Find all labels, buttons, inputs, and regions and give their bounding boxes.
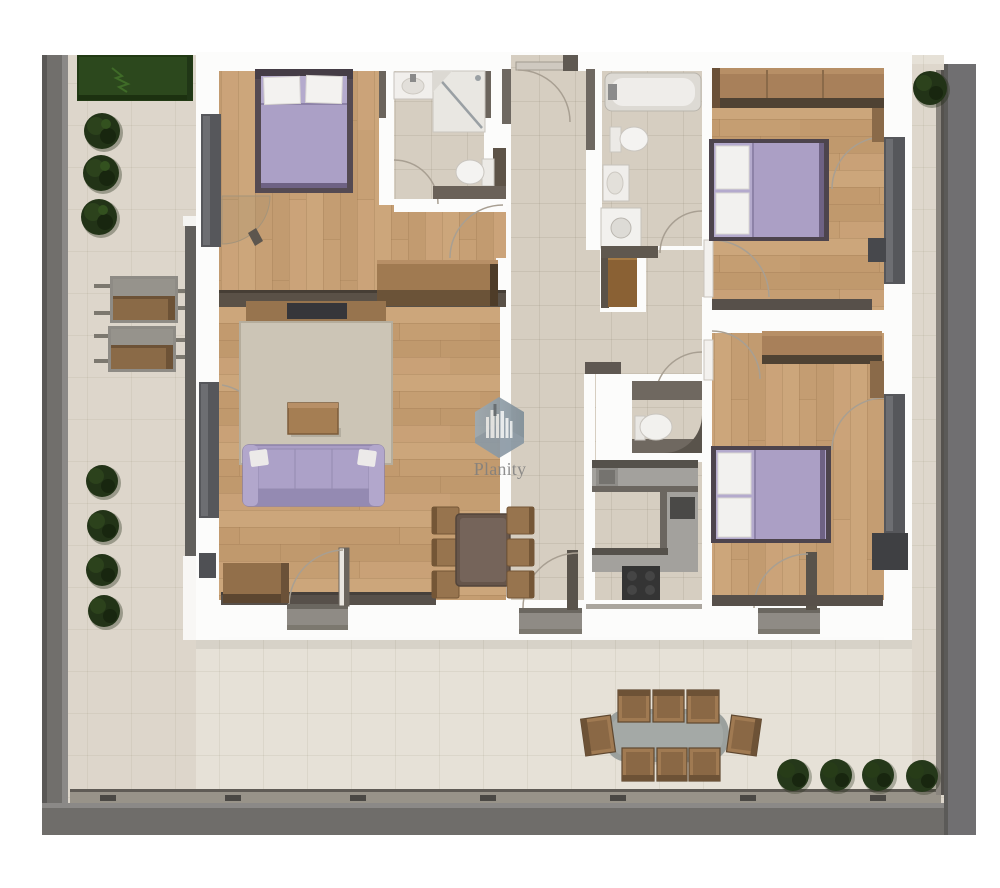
svg-text:Planity: Planity — [474, 459, 526, 479]
